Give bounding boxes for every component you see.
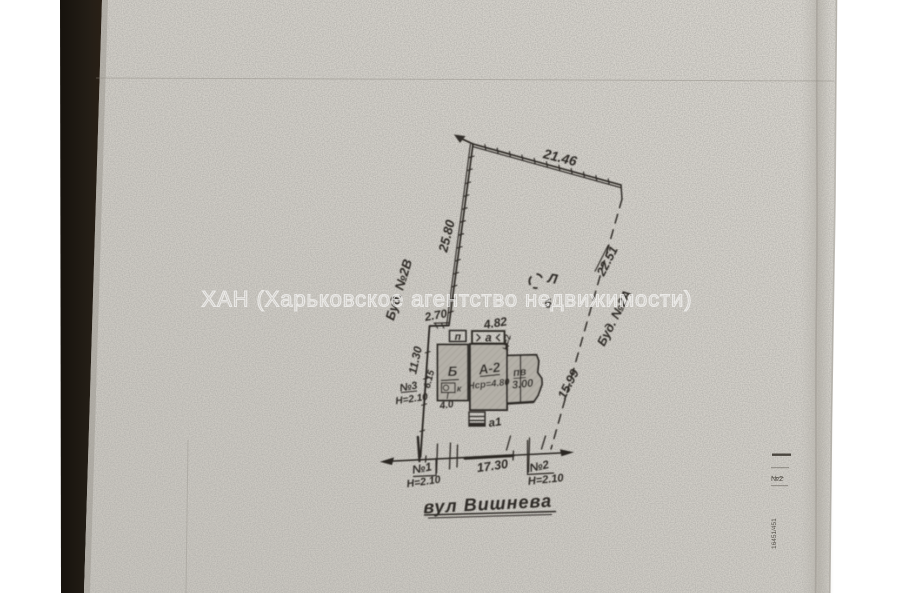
svg-text:а1: а1: [488, 416, 502, 430]
svg-text:№2: №2: [771, 474, 783, 483]
svg-text:ХАН (Харьковское агентство нед: ХАН (Харьковское агентство недвижимости): [202, 287, 693, 312]
svg-text:3.00: 3.00: [511, 377, 534, 391]
svg-text:а: а: [485, 333, 492, 345]
svg-text:к: к: [457, 384, 462, 394]
svg-text:16451/451: 16451/451: [771, 518, 778, 549]
svg-text:Б: Б: [448, 364, 458, 379]
svg-text:п: п: [455, 331, 462, 343]
svg-text:4.0: 4.0: [438, 399, 455, 412]
